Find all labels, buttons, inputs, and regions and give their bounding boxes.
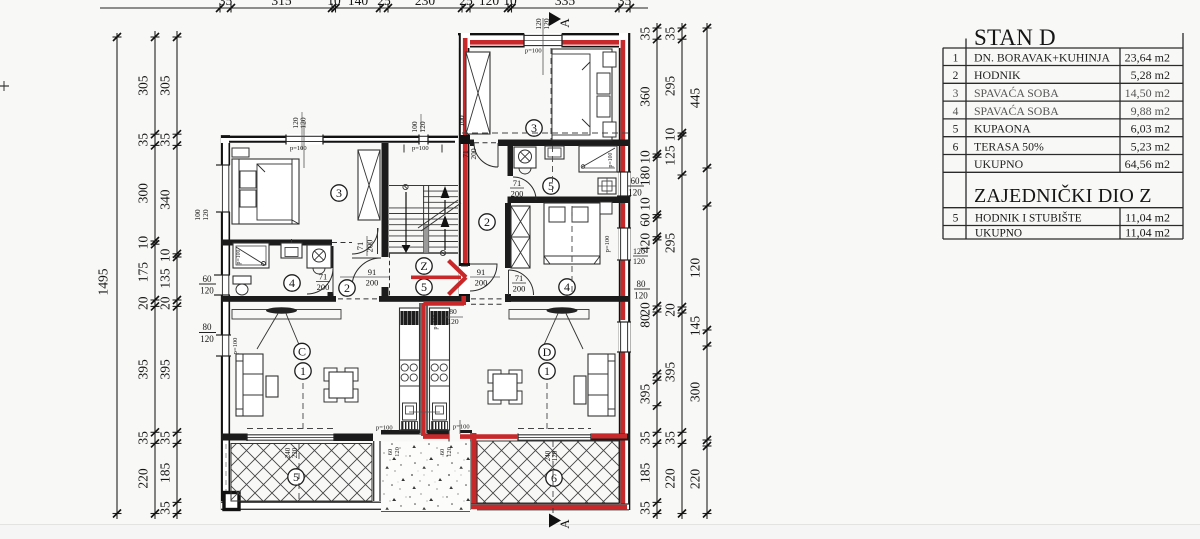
svg-text:5,23 m2: 5,23 m2 [1131,139,1170,153]
svg-text:3: 3 [953,88,959,100]
svg-text:1495: 1495 [96,268,111,295]
svg-text:10: 10 [136,236,151,250]
svg-text:91: 91 [477,267,486,277]
svg-text:145: 145 [688,316,703,337]
svg-text:KUPAONA: KUPAONA [974,122,1031,136]
svg-text:1: 1 [953,52,959,64]
svg-text:35: 35 [219,0,233,8]
svg-text:395: 395 [136,359,151,380]
svg-text:60: 60 [387,449,394,456]
svg-text:120: 120 [634,291,648,301]
svg-text:35: 35 [158,133,173,147]
svg-text:6: 6 [551,471,557,485]
svg-text:60: 60 [439,449,446,456]
svg-text:35: 35 [158,501,173,515]
svg-text:25: 25 [459,0,473,8]
svg-text:C: C [298,345,306,359]
svg-text:185: 185 [158,463,173,484]
svg-text:220: 220 [291,447,299,458]
svg-text:ZAJEDNIČKI DIO Z: ZAJEDNIČKI DIO Z [974,183,1152,207]
svg-text:35: 35 [638,431,653,445]
svg-text:35: 35 [663,27,678,41]
svg-text:20: 20 [663,303,678,317]
svg-text:60: 60 [631,176,641,186]
svg-text:120: 120 [447,317,459,326]
svg-text:5: 5 [293,470,299,484]
svg-text:180: 180 [638,166,653,187]
svg-text:10: 10 [638,197,653,211]
svg-text:200: 200 [511,189,524,199]
svg-text:445: 445 [688,88,703,109]
svg-text:64,56 m2: 64,56 m2 [1125,157,1170,171]
svg-text:5: 5 [953,124,959,136]
svg-text:200: 200 [366,278,379,288]
svg-text:295: 295 [663,233,678,254]
svg-text:220: 220 [663,468,678,489]
svg-text:71: 71 [319,272,328,282]
svg-text:140: 140 [348,0,369,8]
svg-text:Z: Z [420,259,427,273]
svg-text:120: 120 [299,117,308,129]
svg-text:35: 35 [136,133,151,147]
svg-text:5: 5 [953,212,959,224]
svg-text:91: 91 [368,267,377,277]
svg-text:p=100: p=100 [608,152,614,167]
svg-text:200: 200 [513,284,526,294]
svg-text:5,28 m2: 5,28 m2 [1131,68,1170,82]
svg-text:3: 3 [336,186,342,200]
svg-text:SPAVAĆA SOBA: SPAVAĆA SOBA [974,86,1059,100]
svg-text:A: A [557,18,572,28]
svg-text:UKUPNO: UKUPNO [975,227,1022,239]
svg-text:80: 80 [449,307,457,316]
svg-text:2: 2 [344,281,350,295]
svg-text:HODNIK: HODNIK [974,68,1021,82]
svg-text:25: 25 [377,0,391,8]
svg-text:120: 120 [418,121,427,133]
svg-text:4: 4 [953,106,959,118]
svg-text:175: 175 [136,262,151,283]
svg-text:p=100: p=100 [604,236,611,253]
svg-text:35: 35 [618,0,632,8]
svg-text:5: 5 [421,280,427,294]
svg-text:11,04 m2: 11,04 m2 [1125,210,1170,224]
svg-text:220: 220 [136,468,151,489]
svg-text:5: 5 [548,179,554,193]
svg-text:125: 125 [663,145,678,166]
svg-text:300: 300 [136,183,151,204]
svg-text:p=100: p=100 [433,314,439,329]
svg-text:305: 305 [136,75,151,96]
svg-text:4: 4 [289,276,295,290]
svg-text:p=100: p=100 [453,424,470,431]
svg-text:11,04 m2: 11,04 m2 [1125,225,1170,239]
svg-text:1: 1 [300,364,306,378]
svg-text:35: 35 [158,431,173,445]
svg-text:185: 185 [638,463,653,484]
svg-text:6,03 m2: 6,03 m2 [1131,122,1170,136]
svg-text:120: 120 [551,450,559,461]
svg-text:295: 295 [663,76,678,97]
svg-text:35: 35 [638,27,653,41]
svg-text:10: 10 [663,128,678,142]
svg-text:10: 10 [503,0,517,8]
svg-text:A: A [557,519,572,529]
svg-text:395: 395 [638,384,653,405]
svg-text:9,88 m2: 9,88 m2 [1131,104,1170,118]
svg-text:200: 200 [317,282,330,292]
svg-text:10: 10 [327,0,341,8]
svg-text:60: 60 [638,213,653,227]
svg-text:315: 315 [271,0,292,8]
svg-text:p=100: p=100 [376,425,393,432]
svg-text:35: 35 [663,431,678,445]
svg-text:p=100: p=100 [236,249,242,264]
svg-text:14,50 m2: 14,50 m2 [1125,86,1170,100]
svg-text:DN. BORAVAK+KUHINJA: DN. BORAVAK+KUHINJA [974,50,1110,64]
svg-text:p=100: p=100 [232,338,239,355]
svg-text:STAN D: STAN D [974,25,1056,50]
svg-text:395: 395 [663,362,678,383]
svg-text:HODNIK I STUBIŠTE: HODNIK I STUBIŠTE [975,212,1082,224]
svg-text:135: 135 [158,268,173,289]
svg-text:20: 20 [158,296,173,310]
svg-text:20: 20 [638,302,653,316]
svg-text:120: 120 [394,447,401,457]
svg-text:120: 120 [633,247,645,256]
svg-text:120: 120 [628,188,642,198]
svg-text:220: 220 [688,469,703,490]
svg-text:p=100: p=100 [525,48,542,55]
svg-text:35: 35 [638,501,653,515]
svg-text:80: 80 [638,314,653,328]
svg-text:D: D [543,345,552,359]
svg-text:2: 2 [953,70,959,82]
svg-text:120: 120 [633,257,645,266]
svg-text:2: 2 [484,215,490,229]
svg-text:6: 6 [953,141,959,153]
svg-text:120: 120 [446,447,453,457]
svg-text:60: 60 [203,274,213,284]
svg-text:300: 300 [688,382,703,403]
svg-text:120: 120 [688,258,703,279]
svg-text:360: 360 [638,86,653,107]
svg-text:4: 4 [564,280,570,294]
svg-text:120: 120 [200,286,214,296]
svg-text:80: 80 [637,279,647,289]
svg-text:340: 340 [158,189,173,210]
svg-text:335: 335 [555,0,576,8]
svg-text:20: 20 [136,296,151,310]
svg-text:10: 10 [158,248,173,262]
svg-text:305: 305 [158,75,173,96]
svg-text:200: 200 [469,148,478,160]
svg-text:35: 35 [136,431,151,445]
svg-text:SPAVAĆA SOBA: SPAVAĆA SOBA [974,104,1059,118]
svg-text:120: 120 [201,209,210,221]
svg-text:23,64 m2: 23,64 m2 [1125,50,1170,64]
svg-text:10: 10 [638,150,653,164]
svg-text:71: 71 [515,273,524,283]
svg-text:80: 80 [203,322,213,332]
svg-text:395: 395 [158,359,173,380]
svg-text:TERASA 50%: TERASA 50% [974,139,1044,153]
svg-text:71: 71 [513,178,522,188]
svg-text:71: 71 [355,242,365,251]
svg-text:1: 1 [544,364,550,378]
svg-text:200: 200 [365,240,375,253]
svg-text:UKUPNO: UKUPNO [974,157,1024,171]
svg-text:120: 120 [479,0,500,8]
svg-text:p=100: p=100 [412,145,429,152]
svg-text:120: 120 [200,334,214,344]
svg-text:230: 230 [415,0,436,8]
